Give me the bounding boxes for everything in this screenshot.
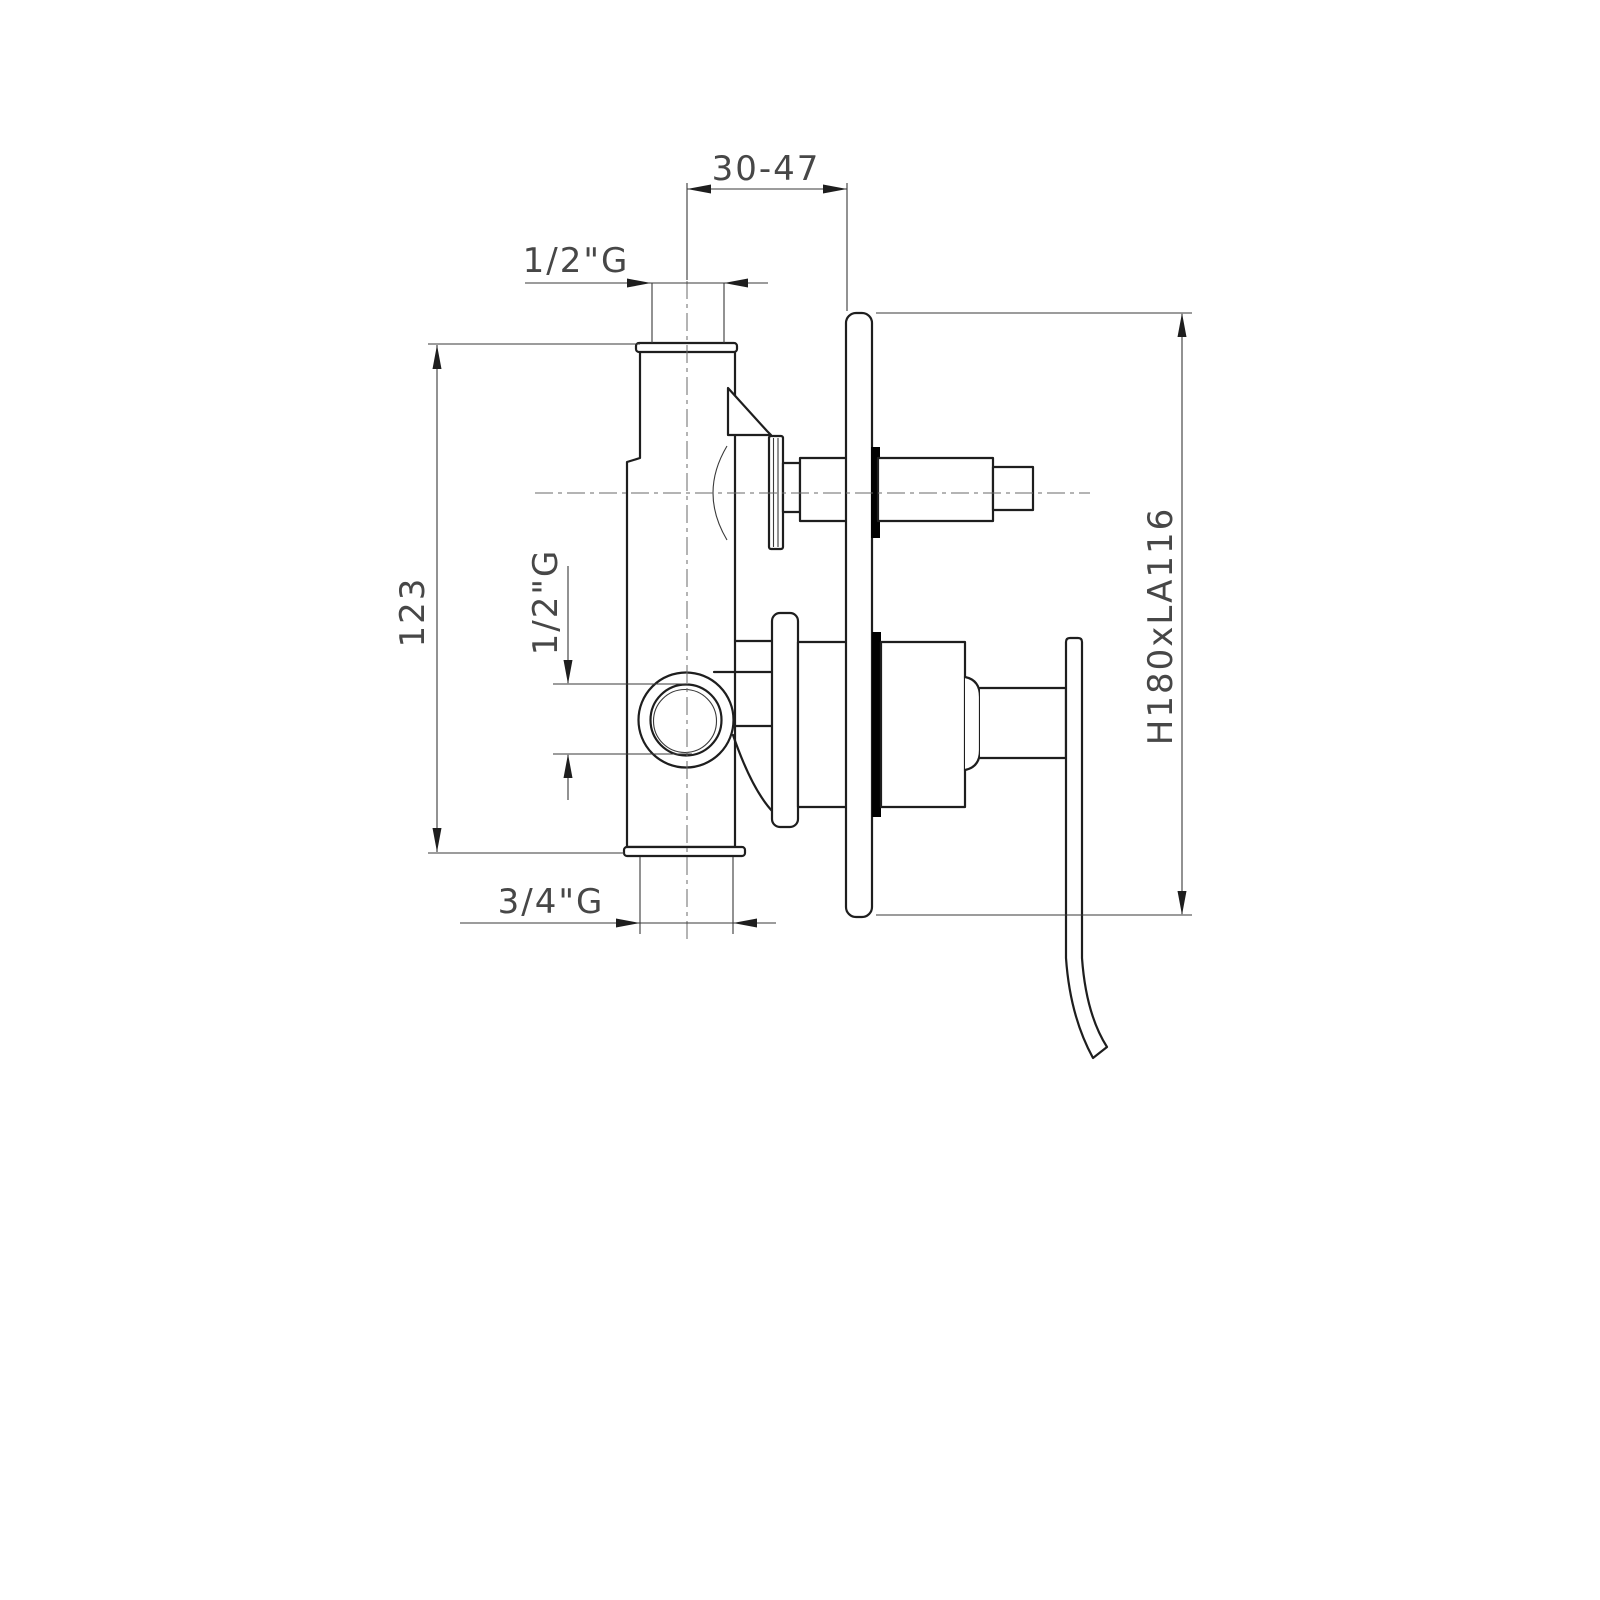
arrow-down	[564, 660, 573, 684]
arrow-up	[564, 754, 573, 778]
dimension-label-top-inlet: 1/2"G	[523, 241, 630, 281]
arrow-left	[724, 279, 748, 288]
lower-seal-gasket	[872, 632, 881, 817]
cartridge-housing	[881, 642, 965, 807]
arrow-down	[1178, 891, 1187, 915]
arrow-down	[433, 828, 442, 852]
centerlines	[535, 185, 1090, 940]
arrow-right	[823, 185, 847, 194]
mixer-valve-drawing: 30-47 1/2"G 123	[0, 0, 1600, 1600]
diverter-shaft-inner	[783, 463, 800, 512]
dimension-label-plate-size: H180xLA116	[1141, 507, 1181, 745]
arrow-left	[687, 185, 711, 194]
arrow-up	[1178, 313, 1187, 337]
arrow-right	[627, 279, 651, 288]
neck-bottom-curve	[733, 735, 773, 812]
dimension-plate-size: H180xLA116	[876, 313, 1192, 915]
body-bottom-collar	[624, 847, 745, 856]
dimension-label-bottom-outlet: 3/4"G	[498, 882, 605, 922]
diverter-cone	[728, 388, 771, 435]
cartridge-flange	[772, 613, 798, 827]
dimension-body-height: 123	[393, 344, 640, 853]
diverter-shaft-outer	[878, 458, 993, 521]
diverter-shaft-body	[800, 458, 847, 521]
wall-plate	[846, 313, 872, 917]
diverter-knob	[993, 467, 1033, 510]
dimension-top-offset: 30-47	[687, 149, 847, 311]
technical-drawing-page: 30-47 1/2"G 123	[0, 0, 1600, 1600]
dimension-label-side-port: 1/2"G	[526, 549, 566, 656]
arrow-left	[733, 919, 757, 928]
valve-assembly	[624, 313, 1066, 917]
cartridge-cylinder	[798, 642, 847, 807]
dimension-label-top-offset: 30-47	[712, 149, 821, 189]
handle-stem	[980, 688, 1066, 758]
side-port-outer	[639, 673, 734, 768]
dimension-top-inlet: 1/2"G	[523, 241, 768, 343]
dimension-bottom-outlet: 3/4"G	[460, 857, 776, 934]
arrow-right	[616, 919, 640, 928]
control-handle-lever	[1066, 638, 1107, 1058]
valve-body	[627, 351, 735, 847]
dimension-label-body-height: 123	[393, 577, 433, 648]
housing-dome-cap	[965, 677, 980, 770]
arrow-up	[433, 345, 442, 369]
